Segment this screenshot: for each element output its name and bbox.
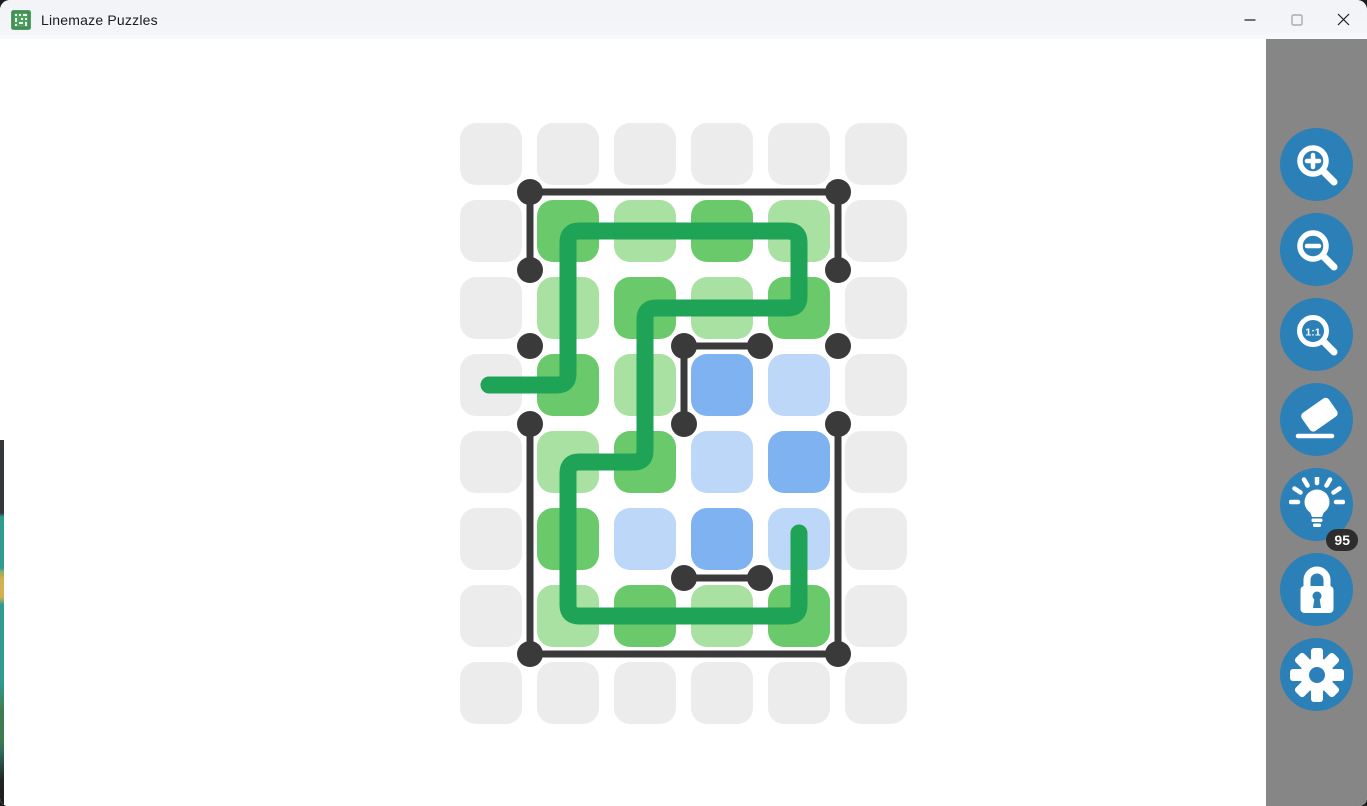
maze-wall-dot-6 xyxy=(671,333,697,359)
toolbar-sidebar: 1:1 xyxy=(1266,39,1367,806)
app-window: Linemaze Puzzles xyxy=(0,0,1367,806)
lock-button[interactable] xyxy=(1280,553,1353,626)
puzzle-canvas[interactable] xyxy=(0,39,1266,806)
titlebar: Linemaze Puzzles xyxy=(0,0,1367,39)
magnifier-minus-icon xyxy=(1292,225,1342,275)
zoom-in-button[interactable] xyxy=(1280,128,1353,201)
puzzle-area xyxy=(0,39,1266,806)
maze-wall-dot-8 xyxy=(825,333,851,359)
cell-r4-c4[interactable] xyxy=(691,354,753,416)
minimize-icon xyxy=(1244,14,1256,26)
maze-wall-dot-5 xyxy=(517,333,543,359)
cell-r8-c2[interactable] xyxy=(537,662,599,724)
zoom-out-button[interactable] xyxy=(1280,213,1353,286)
magnifier-plus-icon xyxy=(1292,140,1342,190)
maze-wall-dot-1 xyxy=(517,179,543,205)
cell-r3-c1[interactable] xyxy=(460,277,522,339)
app-maze-icon xyxy=(11,10,31,30)
magnifier-1-1-icon: 1:1 xyxy=(1292,310,1342,360)
maze-wall-dot-13 xyxy=(747,565,773,591)
cell-r5-c1[interactable] xyxy=(460,431,522,493)
maximize-icon xyxy=(1291,14,1303,26)
cell-r8-c6[interactable] xyxy=(845,662,907,724)
maze-wall-dot-10 xyxy=(671,411,697,437)
cell-r8-c1[interactable] xyxy=(460,662,522,724)
maze-wall-dot-15 xyxy=(825,641,851,667)
window-controls xyxy=(1226,0,1367,39)
cell-r6-c6[interactable] xyxy=(845,508,907,570)
maze-wall-dot-2 xyxy=(825,179,851,205)
eraser-button[interactable] xyxy=(1280,383,1353,456)
settings-button[interactable] xyxy=(1280,638,1353,711)
cell-r1-c1[interactable] xyxy=(460,123,522,185)
cell-r5-c5[interactable] xyxy=(768,431,830,493)
cell-r7-c1[interactable] xyxy=(460,585,522,647)
padlock-icon xyxy=(1291,564,1343,616)
maximize-button[interactable] xyxy=(1273,0,1320,39)
zoom-actual-button[interactable]: 1:1 xyxy=(1280,298,1353,371)
hint-count-badge: 95 xyxy=(1326,529,1358,551)
hint-button[interactable]: 95 xyxy=(1280,468,1353,541)
zoom-actual-label: 1:1 xyxy=(1305,326,1320,338)
lightbulb-icon xyxy=(1289,477,1345,533)
maze-wall-dot-9 xyxy=(517,411,543,437)
cell-r2-c6[interactable] xyxy=(845,200,907,262)
maze-wall-dot-12 xyxy=(671,565,697,591)
maze-wall-dot-14 xyxy=(517,641,543,667)
maze-wall-dot-4 xyxy=(825,257,851,283)
cell-r5-c6[interactable] xyxy=(845,431,907,493)
cell-r1-c5[interactable] xyxy=(768,123,830,185)
cell-r6-c3[interactable] xyxy=(614,508,676,570)
minimize-button[interactable] xyxy=(1226,0,1273,39)
maze-wall-dot-3 xyxy=(517,257,543,283)
eraser-icon xyxy=(1290,393,1344,447)
maze-wall-dot-11 xyxy=(825,411,851,437)
cell-r6-c1[interactable] xyxy=(460,508,522,570)
close-icon xyxy=(1337,13,1350,26)
cell-r8-c5[interactable] xyxy=(768,662,830,724)
cell-r1-c2[interactable] xyxy=(537,123,599,185)
cell-r1-c4[interactable] xyxy=(691,123,753,185)
cell-r8-c3[interactable] xyxy=(614,662,676,724)
desktop-edge-sliver xyxy=(0,440,4,806)
cell-r4-c5[interactable] xyxy=(768,354,830,416)
cell-r3-c6[interactable] xyxy=(845,277,907,339)
cell-r1-c6[interactable] xyxy=(845,123,907,185)
maze-wall-dot-7 xyxy=(747,333,773,359)
cell-r8-c4[interactable] xyxy=(691,662,753,724)
cell-r7-c6[interactable] xyxy=(845,585,907,647)
cell-r6-c4[interactable] xyxy=(691,508,753,570)
cell-r5-c4[interactable] xyxy=(691,431,753,493)
gear-icon xyxy=(1289,647,1345,703)
cell-r1-c3[interactable] xyxy=(614,123,676,185)
cell-r2-c1[interactable] xyxy=(460,200,522,262)
close-button[interactable] xyxy=(1320,0,1367,39)
window-title: Linemaze Puzzles xyxy=(41,12,158,28)
cell-r4-c6[interactable] xyxy=(845,354,907,416)
